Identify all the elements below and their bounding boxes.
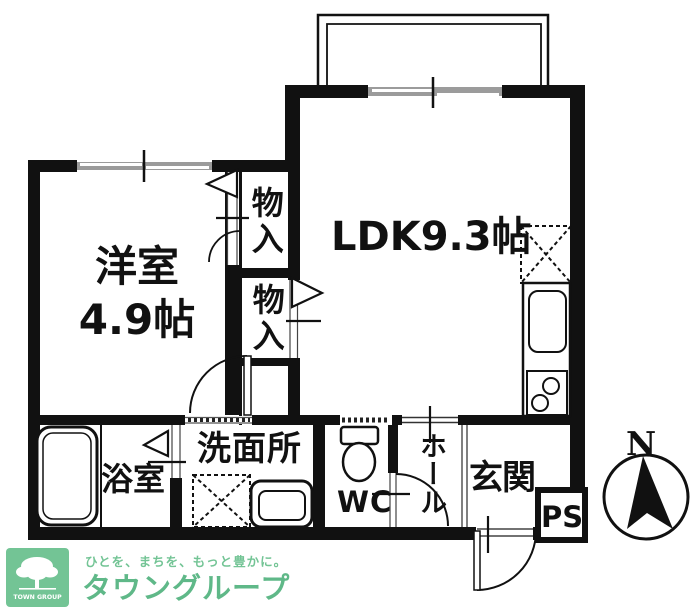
wall-closet-divider — [242, 268, 288, 278]
window-pane — [146, 166, 209, 169]
wc-sliding-door — [340, 416, 392, 424]
wall-bottom-left — [28, 527, 476, 540]
wall-ldk-left-upper — [285, 85, 300, 172]
wall-mid-2 — [252, 415, 340, 425]
wall-right-outer — [570, 85, 585, 540]
entrance-label: 玄関 — [469, 459, 535, 498]
wall-wc-hall-upper — [388, 425, 398, 473]
balcony-outer-line — [318, 15, 548, 85]
north-arrow — [627, 456, 673, 529]
folding-door-icon — [207, 170, 237, 197]
window-pane — [437, 93, 499, 96]
door-leaf — [474, 531, 480, 590]
wall-western-right-lower — [225, 265, 242, 415]
western-room-name: 洋室 — [62, 240, 212, 293]
pipe-space-label: PS — [541, 501, 583, 534]
ldk-window — [368, 77, 502, 108]
wall-bath-washroom-lower — [170, 478, 182, 527]
window-pane — [80, 163, 142, 166]
floorplan-image: LDK9.3帖 洋室 4.9帖 物入 物入 浴室 洗面所 WC ホール 玄関 P… — [0, 0, 700, 610]
closet-upper-label: 物入 — [247, 186, 284, 258]
western-room-size: 4.9帖 — [62, 293, 212, 346]
town-group-logo: TOWN GROUP — [6, 548, 69, 607]
western-room-sliding-door — [185, 416, 252, 424]
closet-upper-door — [207, 170, 249, 265]
tree-icon: TOWN GROUP — [6, 548, 69, 607]
washing-machine-space-icon — [193, 475, 250, 527]
compass-icon — [604, 455, 688, 539]
wall-mid-3 — [392, 415, 402, 425]
toilet-bowl — [343, 443, 375, 481]
closet-lower-label: 物入 — [248, 283, 285, 355]
wc-label: WC — [337, 486, 392, 519]
washbasin-bowl — [259, 491, 305, 520]
bath-room-label: 浴室 — [101, 461, 165, 498]
bathtub-outer — [37, 427, 97, 525]
western-room-label: 洋室 4.9帖 — [62, 240, 212, 346]
wall-washroom-wc — [313, 425, 325, 527]
washroom-label: 洗面所 — [197, 430, 302, 469]
folding-door-icon — [292, 278, 322, 307]
toilet-tank — [341, 427, 378, 444]
compass-north-label: N — [626, 424, 656, 463]
wall-closet-right-lower — [288, 358, 300, 425]
folding-door-icon — [144, 431, 168, 456]
closet-lower-door — [286, 278, 322, 358]
bathtub-icon — [37, 427, 97, 525]
washbasin-icon — [251, 481, 312, 527]
entrance-door — [474, 516, 536, 590]
brand-name: タウングループ — [82, 565, 290, 607]
window-pane — [372, 89, 432, 92]
door-leaf — [244, 356, 251, 415]
balcony-inner-line — [327, 24, 541, 85]
ldk-room-label: LDK9.3帖 — [331, 214, 532, 260]
kitchen-unit — [523, 283, 570, 416]
toilet-icon — [341, 427, 378, 481]
hall-label: ホール — [415, 432, 446, 516]
logo-box-text: TOWN GROUP — [13, 594, 62, 601]
wall-closet-right-upper — [288, 160, 300, 280]
western-room-window — [77, 150, 212, 182]
sink-icon — [529, 291, 566, 352]
wall-mid-1 — [28, 415, 185, 425]
